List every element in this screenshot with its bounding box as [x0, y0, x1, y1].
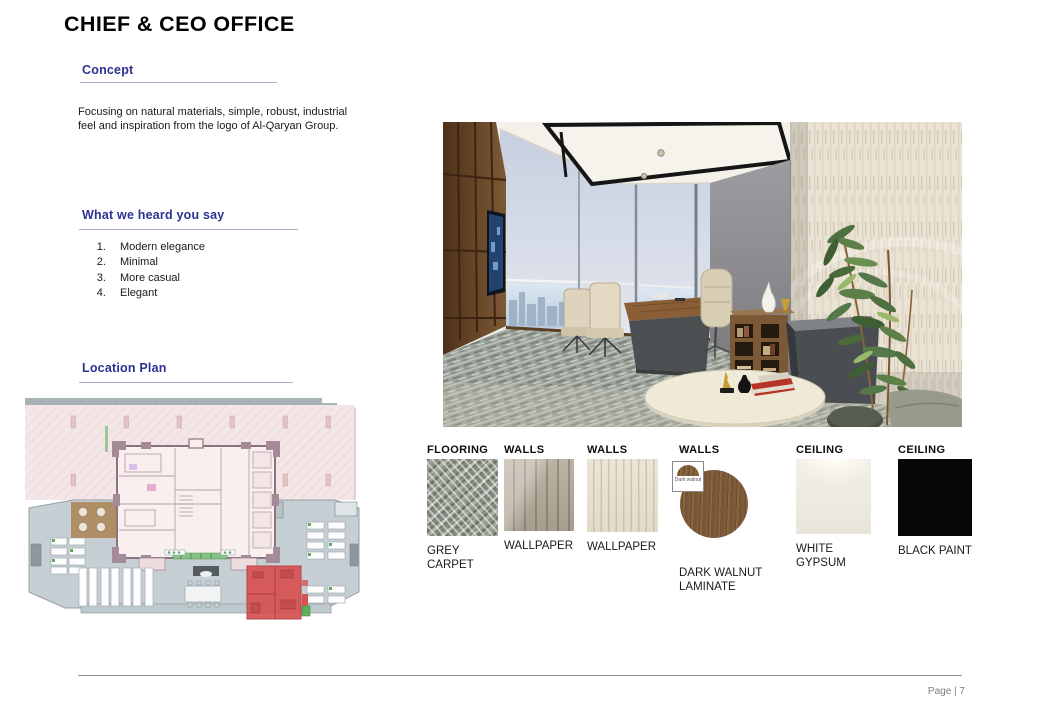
material-name: DARK WALNUT LAMINATE: [679, 567, 778, 594]
material-name: WHITE GYPSUM: [796, 543, 871, 570]
material-name: GREY CARPET: [427, 545, 499, 572]
material-flooring: FLOORING GREY CARPET: [427, 444, 499, 572]
walnut-tag-label: Dark walnut: [673, 477, 703, 483]
material-name: BLACK PAINT: [898, 545, 978, 559]
location-rule: [79, 382, 293, 383]
office-render-image: [443, 122, 962, 427]
feedback-item: Minimal: [109, 256, 319, 269]
material-category: FLOORING: [427, 444, 499, 456]
material-category: CEILING: [898, 444, 978, 456]
material-ceiling-2: CEILING BLACK PAINT: [898, 444, 978, 559]
page-title: CHIEF & CEO OFFICE: [64, 12, 295, 37]
floor-plan-image: [25, 398, 363, 626]
white-gypsum-swatch: [796, 459, 871, 534]
cream-wallpaper-swatch: [587, 459, 658, 532]
slide: CHIEF & CEO OFFICE Concept Focusing on n…: [0, 0, 1040, 720]
taupe-wallpaper-swatch: [504, 459, 574, 531]
footer-divider: [78, 675, 962, 676]
black-paint-swatch: [898, 459, 972, 536]
material-category: WALLS: [504, 444, 574, 456]
page-number: Page | 7: [880, 686, 965, 697]
feedback-rule: [79, 229, 298, 230]
material-category: WALLS: [679, 444, 778, 456]
material-category: CEILING: [796, 444, 871, 456]
material-name: WALLPAPER: [587, 541, 658, 555]
material-ceiling-1: CEILING WHITE GYPSUM: [796, 444, 871, 570]
dark-walnut-swatch: Dark walnut: [672, 459, 778, 555]
feedback-list: Modern elegance Minimal More casual Eleg…: [82, 241, 319, 303]
material-walls-2: WALLS WALLPAPER: [587, 444, 658, 555]
grey-carpet-swatch: [427, 459, 498, 536]
location-heading: Location Plan: [82, 361, 167, 375]
feedback-item: More casual: [109, 272, 319, 285]
concept-body: Focusing on natural materials, simple, r…: [78, 106, 350, 133]
material-category: WALLS: [587, 444, 658, 456]
material-walls-1: WALLS WALLPAPER: [504, 444, 574, 554]
feedback-item: Modern elegance: [109, 241, 319, 254]
concept-heading: Concept: [82, 63, 133, 77]
walnut-tag-chip: [677, 465, 699, 476]
material-walls-3: WALLS Dark walnut DARK WALNUT LAMINATE: [672, 444, 778, 594]
walnut-sample-tag: Dark walnut: [672, 461, 704, 492]
feedback-item: Elegant: [109, 287, 319, 300]
material-name: WALLPAPER: [504, 540, 574, 554]
feedback-heading: What we heard you say: [82, 208, 224, 222]
concept-rule: [80, 82, 277, 83]
